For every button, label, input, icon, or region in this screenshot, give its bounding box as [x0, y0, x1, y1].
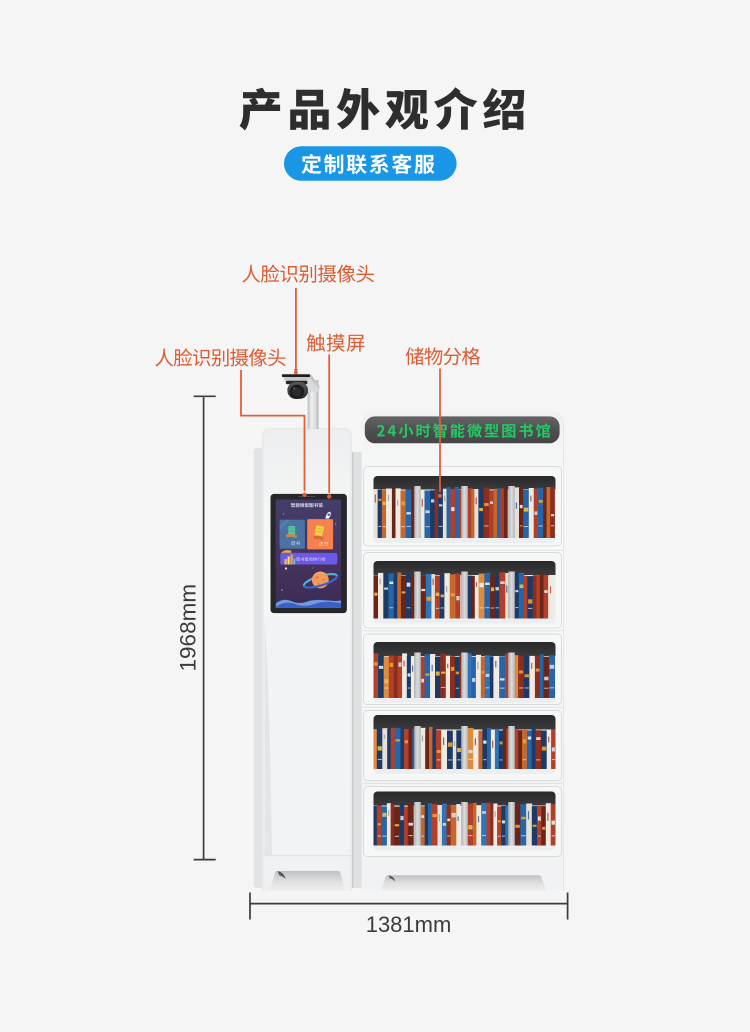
svg-text:1381mm: 1381mm [366, 912, 452, 937]
svg-text:1968mm: 1968mm [176, 584, 201, 672]
